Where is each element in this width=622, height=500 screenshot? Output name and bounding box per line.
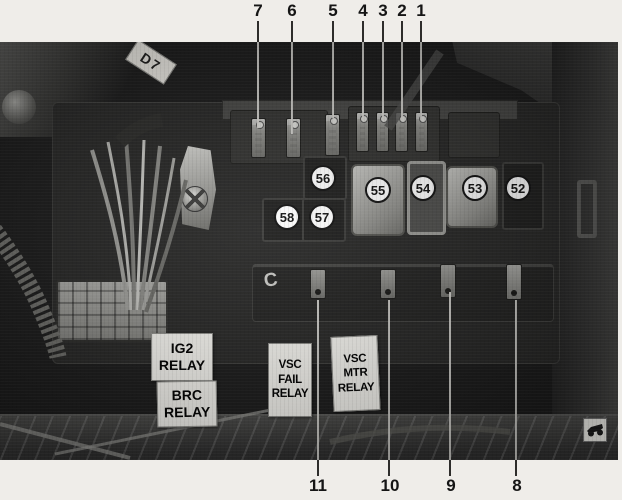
- callout-number-8: 8: [512, 476, 521, 496]
- label-line: FAIL: [278, 373, 302, 387]
- callout-number-5: 5: [328, 1, 337, 21]
- leader-line-9: [449, 292, 451, 460]
- circled-callout-56: 56: [310, 165, 336, 191]
- label-line: RELAY: [164, 404, 210, 422]
- leader-line-8-band: [515, 460, 517, 476]
- fusible-link-5: [325, 114, 340, 156]
- engine-bay-photo: D7 C: [0, 42, 618, 460]
- label-line: MTR: [343, 366, 368, 381]
- callout-number-11: 11: [309, 476, 327, 496]
- leader-line-6: [291, 42, 293, 134]
- label-line: RELAY: [338, 380, 375, 396]
- label-ig2-relay: IG2 RELAY: [151, 333, 213, 381]
- leader-line-6-band: [291, 21, 293, 42]
- label-line: IG2: [171, 340, 194, 358]
- relay-connector-9: [440, 264, 456, 298]
- leader-line-4-band: [362, 21, 364, 42]
- vehicle-icon: [583, 418, 607, 442]
- leader-line-5: [332, 42, 334, 118]
- callout-number-7: 7: [253, 1, 262, 21]
- leader-line-7-band: [257, 21, 259, 42]
- fusible-link-6: [286, 118, 301, 158]
- relay-connector-8: [506, 264, 522, 300]
- leader-line-9-band: [449, 460, 451, 476]
- fusible-link-block-end: [448, 112, 500, 158]
- circled-callout-55: 55: [365, 177, 391, 203]
- circled-callout-53: 53: [462, 175, 488, 201]
- molded-c-mark: C: [263, 269, 280, 293]
- leader-line-10-band: [388, 460, 390, 476]
- leader-line-8: [515, 300, 517, 460]
- label-line: RELAY: [159, 357, 205, 375]
- callout-number-6: 6: [287, 1, 296, 21]
- leader-line-3-band: [382, 21, 384, 42]
- label-vsc-fail-relay: VSC FAIL RELAY: [268, 343, 312, 417]
- leader-line-5-band: [332, 21, 334, 42]
- leader-line-10: [388, 300, 390, 460]
- leader-line-1-band: [420, 21, 422, 42]
- leader-line-4: [362, 42, 364, 120]
- label-vsc-mtr-relay: VSC MTR RELAY: [330, 335, 380, 412]
- leader-line-3: [382, 42, 384, 120]
- leader-line-2-band: [401, 21, 403, 42]
- circled-callout-58: 58: [274, 204, 300, 230]
- relay-connector-11: [310, 269, 326, 299]
- manual-figure-page: 7 6 5 4 3 2 1 D7: [0, 0, 622, 500]
- leader-line-2: [401, 42, 403, 120]
- label-line: VSC: [279, 358, 302, 372]
- label-line: VSC: [343, 351, 366, 366]
- side-bracket: [577, 180, 597, 238]
- leader-line-11-band: [317, 460, 319, 476]
- cowl-panel: [0, 414, 618, 460]
- callout-number-10: 10: [381, 476, 400, 496]
- leader-line-7: [257, 42, 259, 128]
- relay-connector-10: [380, 269, 396, 299]
- label-line: BRC: [172, 386, 203, 404]
- label-line: RELAY: [272, 387, 308, 401]
- right-side-panel: [552, 42, 618, 460]
- callout-number-9: 9: [446, 476, 455, 496]
- leader-line-11: [317, 300, 319, 460]
- circled-callout-54: 54: [410, 175, 436, 201]
- bolt-head: [2, 90, 36, 124]
- label-brc-relay: BRC RELAY: [157, 380, 218, 427]
- leader-line-1: [420, 42, 422, 120]
- callout-number-3: 3: [378, 1, 387, 21]
- bracket-screw: [182, 186, 208, 212]
- circled-callout-52: 52: [505, 175, 531, 201]
- callout-number-2: 2: [397, 1, 406, 21]
- circled-callout-57: 57: [309, 204, 335, 230]
- callout-number-1: 1: [416, 1, 425, 21]
- callout-number-4: 4: [358, 1, 367, 21]
